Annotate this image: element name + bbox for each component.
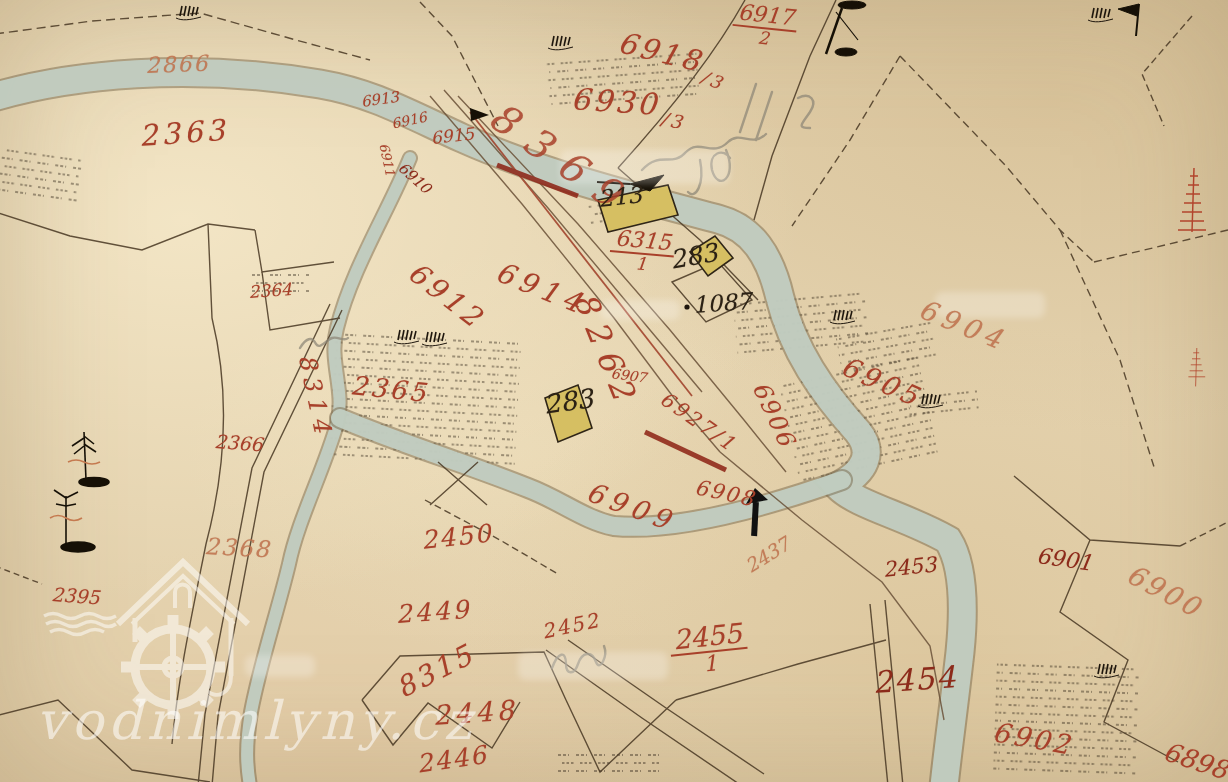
- parcel-label-6315-1: 6315 1: [608, 228, 675, 275]
- parcel-label-2363: 2363: [138, 116, 230, 151]
- building-label-1087: 1087: [692, 290, 752, 317]
- parcel-label-2455-1: 2455 1: [668, 620, 750, 678]
- watermark-text: vodnimlyny.cz: [36, 694, 477, 747]
- orchard-tree-icon: [1188, 348, 1205, 386]
- parcel-label-2368: 2368: [204, 535, 272, 561]
- parcel-label-2364: 2364: [248, 281, 292, 301]
- orchard-tree-icon: [1178, 168, 1206, 232]
- parcel-label-2454: 2454: [872, 662, 958, 698]
- parcel-label-6917-2: 6917 2: [731, 2, 799, 50]
- parcel-label-2866: 2866: [145, 53, 210, 77]
- parcel-label-2449: 2449: [395, 597, 472, 627]
- building-label-283-upper: 283: [668, 240, 719, 273]
- house-number-dot: [684, 304, 689, 309]
- cadastral-map-canvas: 2866 2363 2364 8314 2365 2366 2368 2395 …: [0, 0, 1228, 782]
- faint-watermark-blur: [245, 655, 315, 677]
- parcel-label-2450: 2450: [420, 521, 494, 553]
- parcel-label-6915: 6915: [430, 125, 475, 146]
- parcel-label-2395: 2395: [51, 585, 101, 607]
- faint-watermark-blur: [518, 652, 668, 680]
- survey-flag-icon: [1118, 4, 1139, 36]
- building-label-283-lower: 283: [542, 385, 595, 418]
- deciduous-tree-icon: [50, 490, 95, 552]
- parcel-label-2366: 2366: [214, 432, 264, 454]
- building-label-213: 213: [597, 183, 643, 210]
- parcel-label-6930-3: 6930/3: [570, 84, 684, 122]
- parcel-label-2453: 2453: [882, 554, 937, 580]
- parcel-label-2365: 2365: [349, 372, 429, 406]
- deciduous-tree-icon: [68, 432, 109, 487]
